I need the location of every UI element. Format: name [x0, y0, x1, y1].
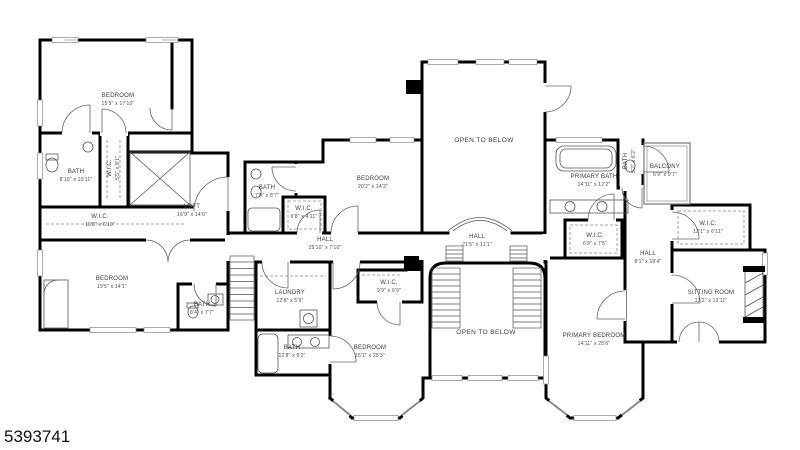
room-label-laundry: LAUNDRY 12'8" x 5'9": [275, 290, 305, 304]
photo-id: 5393741: [4, 427, 70, 447]
room-label-bath-3: BATH 12'8" x 9'2": [278, 345, 305, 359]
room-label-wic-6: W.I.C. 6'9" x 7'5": [583, 233, 607, 247]
room-label-hall-1: HALL 25'10" x 7'10": [308, 237, 341, 251]
room-label-wic-5: W.I.C. 12'1" x 6'11": [693, 221, 723, 235]
room-label-bath-1: BATH 8'10" x 10'11": [60, 169, 93, 183]
room-label-wic-4: W.I.C. 9'9" x 6'9": [377, 280, 401, 294]
room-label-bedroom-4: BEDROOM 15'1" x 25'3": [354, 345, 386, 359]
room-label-loft: LOFT 16'9" x 14'0": [177, 204, 207, 218]
room-label-hall-2: HALL 21'5" x 11'1": [462, 234, 492, 248]
room-label-wic-2: W.I.C. 10'8" x 6'10": [85, 214, 115, 228]
room-label-hall-3: HALL 8'1" x 18'4": [634, 251, 661, 265]
room-label-wic-1: W.I.C. 5'5" x 9'1": [107, 156, 121, 180]
room-label-bath-5: BATH 5'2" x 6'2": [623, 149, 637, 173]
room-label-bedroom-1: BEDROOM 15'9" x 17'10": [101, 93, 134, 107]
room-label-bath-4: BATH 7'9" x 8'7": [255, 185, 279, 199]
room-label-primary-bath: PRIMARY BATH 14'11" x 12'2": [571, 174, 618, 188]
walls: [40, 40, 765, 418]
room-label-bedroom-3: BEDROOM 20'2" x 14'3": [357, 176, 389, 190]
room-label-wic-3: W.I.C. 6'8" x 4'11": [291, 206, 318, 220]
room-label-balcony: BALCONY 6'9" x 9'7": [650, 164, 680, 178]
room-label-open-below-1: OPEN TO BELOW: [454, 137, 514, 145]
room-label-primary-bedroom: PRIMARY BEDROOM 14'11" x 25'6": [563, 333, 626, 347]
door-openings: [62, 83, 719, 364]
bay-windows: [333, 401, 640, 415]
room-label-bath-2: BATH 8'4" x 7'7": [190, 302, 214, 316]
room-label-sitting-room: SITTING ROOM 13'2" x 13'11": [688, 290, 734, 304]
floorplan-drawing: [0, 0, 800, 450]
windows: [38, 38, 768, 421]
floorplan-page: BEDROOM 15'9" x 17'10" BATH 8'10" x 10'1…: [0, 0, 800, 450]
archway: [448, 218, 512, 232]
room-label-open-below-2: OPEN TO BELOW: [456, 329, 516, 337]
room-label-bedroom-2: BEDROOM 19'5" x 14'1": [96, 276, 128, 290]
